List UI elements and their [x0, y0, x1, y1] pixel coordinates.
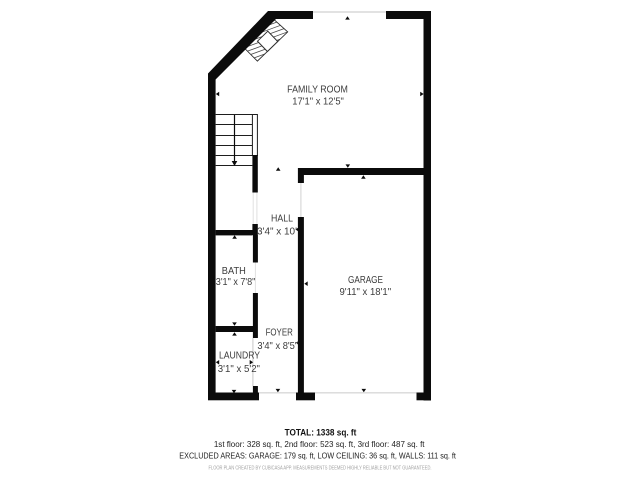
svg-text:3'1" x 5'2": 3'1" x 5'2": [218, 363, 260, 375]
svg-text:3'1" x 7'8": 3'1" x 7'8": [216, 276, 256, 288]
svg-text:9'11" x 18'1": 9'11" x 18'1": [340, 286, 392, 298]
svg-text:FAMILY ROOM: FAMILY ROOM: [287, 84, 348, 95]
svg-text:LAUNDRY: LAUNDRY: [219, 351, 260, 362]
svg-text:GARAGE: GARAGE: [348, 275, 383, 286]
svg-text:FOYER: FOYER: [266, 328, 293, 339]
svg-text:1st floor: 328 sq. ft, 2nd flo: 1st floor: 328 sq. ft, 2nd floor: 523 sq…: [214, 439, 425, 449]
svg-text:17'1" x 12'5": 17'1" x 12'5": [292, 96, 344, 108]
svg-text:3'4" x 10': 3'4" x 10': [257, 226, 297, 238]
svg-text:EXCLUDED AREAS: GARAGE: 179 sq: EXCLUDED AREAS: GARAGE: 179 sq. ft, LOW …: [179, 450, 456, 460]
svg-text:FLOOR PLAN CREATED BY CUBICASA: FLOOR PLAN CREATED BY CUBICASA APP. MEAS…: [209, 465, 432, 471]
svg-text:HALL: HALL: [271, 214, 293, 225]
svg-text:3'4" x 8'5": 3'4" x 8'5": [257, 340, 298, 352]
svg-text:TOTAL: 1338 sq. ft: TOTAL: 1338 sq. ft: [285, 428, 358, 439]
